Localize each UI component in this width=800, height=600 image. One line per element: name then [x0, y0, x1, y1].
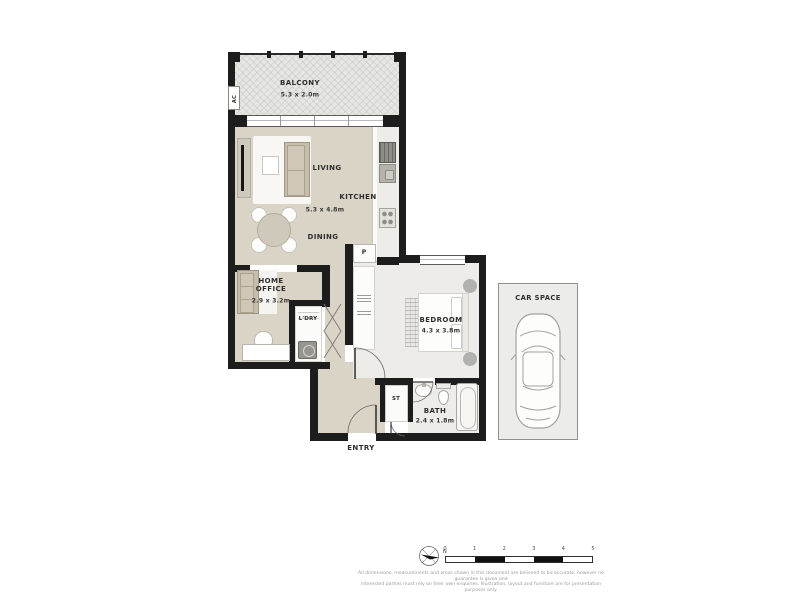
scale-segment	[446, 557, 475, 562]
entry-label: ENTRY	[347, 444, 375, 452]
compass-icon	[418, 544, 442, 568]
scale-bar	[445, 556, 593, 563]
car-icon	[510, 310, 566, 432]
scale-segment	[563, 557, 592, 562]
bedroom-label: BEDROOM	[420, 316, 463, 324]
scale-tick-label: 1	[473, 546, 476, 552]
doors-overlay	[228, 48, 486, 450]
laundry-label: L'DRY	[299, 315, 318, 323]
living-dims: 5.3 x 4.8m	[306, 207, 345, 214]
disclaimer-line: All dimensions, measurements and areas s…	[352, 571, 610, 582]
scale-tick-label: 2	[503, 546, 506, 552]
apartment-plan: AC	[228, 48, 486, 450]
home-office-dims: 2.9 x 3.2m	[252, 298, 291, 305]
storage-label: ST	[392, 395, 400, 403]
floor-plan-page: AC	[0, 0, 800, 600]
scale-tick-label: 5	[591, 546, 594, 552]
car-space-label: CAR SPACE	[515, 294, 561, 302]
balcony-label: BALCONY	[280, 79, 320, 87]
disclaimer-line: interested parties must rely on their ow…	[352, 582, 610, 593]
balcony-dims: 5.3 x 2.0m	[281, 92, 320, 99]
scale-segment	[534, 557, 563, 562]
scale-tick-label: 0	[443, 546, 446, 552]
dining-label: DINING	[308, 233, 339, 241]
bedroom-dims: 4.3 x 3.8m	[422, 328, 461, 335]
scale-segment	[505, 557, 534, 562]
bath-label: BATH	[424, 407, 446, 415]
pantry-label: P	[362, 249, 367, 257]
home-office-label: HOME OFFICE	[245, 277, 297, 293]
scale-segment	[475, 557, 504, 562]
disclaimer: All dimensions, measurements and areas s…	[352, 571, 610, 593]
car-space: CAR SPACE	[498, 283, 578, 440]
living-label: LIVING	[312, 164, 341, 172]
bath-dims: 2.4 x 1.8m	[416, 418, 455, 425]
kitchen-label: KITCHEN	[339, 193, 376, 201]
scale-tick-label: 4	[562, 546, 565, 552]
scale-tick-label: 3	[532, 546, 535, 552]
